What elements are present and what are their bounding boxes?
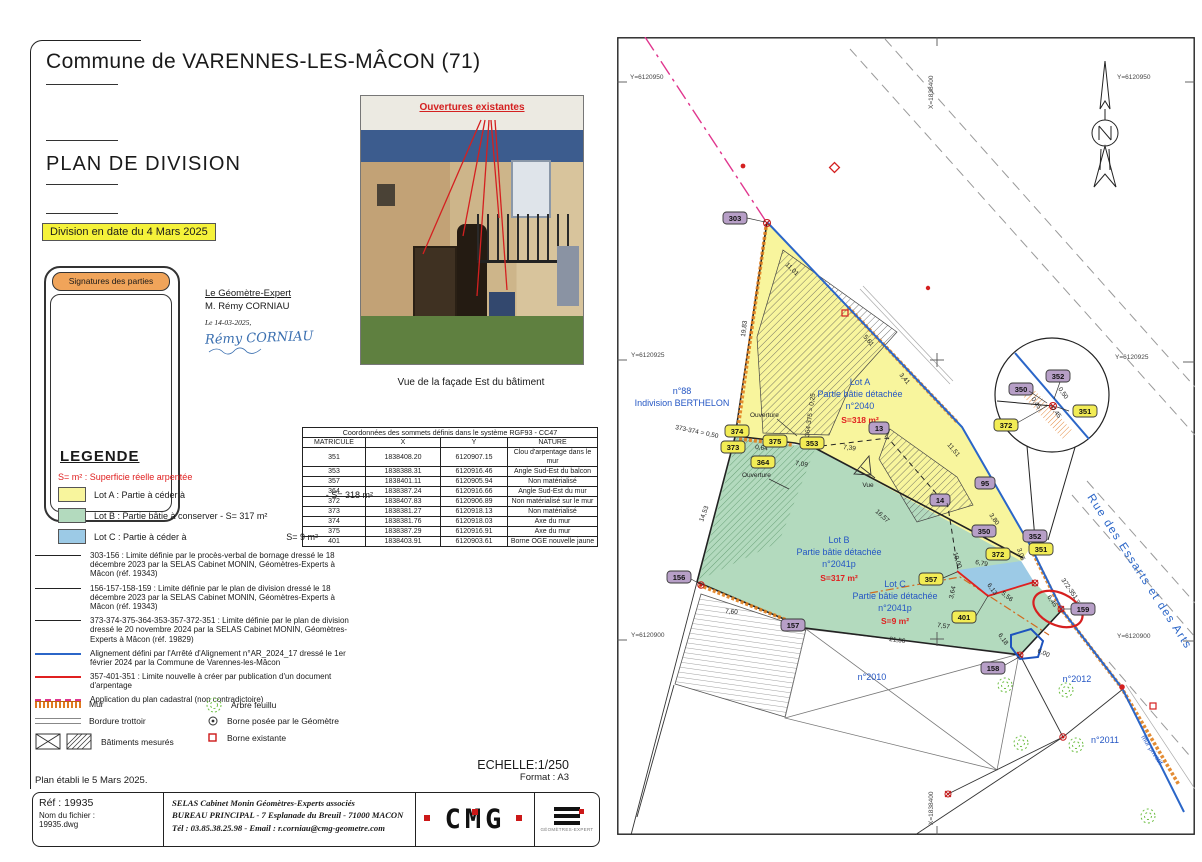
- svg-text:Lot C: Lot C: [884, 579, 906, 589]
- svg-text:n°2012: n°2012: [1063, 674, 1092, 684]
- svg-text:303: 303: [729, 214, 742, 223]
- legend-lot-a: Lot A : Partie à céder à - S= 318 m²: [58, 487, 373, 502]
- svg-text:Y=6120900: Y=6120900: [1117, 633, 1151, 640]
- logo-accent: [472, 809, 478, 815]
- svg-text:373: 373: [727, 443, 740, 452]
- legend-entry: 156-157-158-159 : Limite définie par le …: [35, 584, 353, 612]
- signature-handwriting: Rémy CORNIAU: [205, 326, 366, 349]
- lot-c-swatch: [58, 529, 86, 544]
- svg-text:Lot B: Lot B: [828, 535, 849, 545]
- surveyor-role: Le Géomètre-Expert: [205, 288, 365, 301]
- ge-logo: GÉOMÈTRES-EXPERT: [535, 793, 599, 846]
- svg-text:350: 350: [1015, 385, 1028, 394]
- lot-b-swatch: [58, 508, 86, 523]
- firm-cell: SELAS Cabinet Monin Géomètres-Experts as…: [164, 793, 416, 846]
- coordinates-table-header: MATRICULE X Y NATURE: [303, 438, 598, 448]
- legend-lot-b: Lot B : Partie bâtie à conserver - S= 31…: [58, 508, 373, 523]
- svg-text:n°2010: n°2010: [858, 672, 887, 682]
- svg-text:X=1838400: X=1838400: [928, 75, 935, 109]
- legend-borne-existante: Borne existante: [207, 732, 286, 744]
- svg-text:Y=6120950: Y=6120950: [1117, 74, 1151, 81]
- svg-text:375: 375: [769, 437, 782, 446]
- svg-text:156: 156: [673, 573, 686, 582]
- format-value: Format : A3: [397, 772, 569, 783]
- svg-text:n°2040: n°2040: [846, 401, 875, 411]
- legend-entry: Alignement défini par l'Arrêté d'Alignem…: [35, 649, 353, 667]
- svg-text:158: 158: [987, 664, 1000, 673]
- scale-block: ECHELLE:1/250 Format : A3: [397, 758, 569, 783]
- survey-plan-drawing: Y=6120950 Y=6120950 Y=6120925 Y=6120925 …: [617, 37, 1195, 835]
- svg-text:357: 357: [925, 575, 938, 584]
- blue-line-sample: [35, 653, 81, 655]
- plan-established-date: Plan établi le 5 Mars 2025.: [35, 775, 147, 786]
- svg-text:Ouverture: Ouverture: [742, 472, 771, 479]
- svg-text:364: 364: [757, 458, 770, 467]
- black-line-sample: [35, 620, 81, 621]
- svg-text:n°2041p: n°2041p: [822, 559, 856, 569]
- curb-icon: [35, 718, 81, 724]
- svg-text:353: 353: [806, 439, 819, 448]
- divider: [46, 84, 118, 85]
- legend-bordure: Bordure trottoir: [35, 716, 146, 726]
- legend-entry: 373-374-375-364-353-357-372-351 : Limite…: [35, 616, 353, 644]
- title-block: Réf : 19935 Nom du fichier : 19935.dwg S…: [32, 792, 600, 847]
- red-line-sample: [35, 676, 81, 678]
- surveyor-name: M. Rémy CORNIAU: [205, 301, 365, 314]
- legend-entry: 357-401-351 : Limite nouvelle à créer pa…: [35, 672, 353, 690]
- table-row: 3511838408.206120907.15Clou d'arpentage …: [303, 448, 598, 467]
- existing-monument-icon: [207, 732, 219, 744]
- legend-line-entries: 303-156 : Limite définie par le procès-v…: [35, 551, 353, 710]
- svg-text:X=1838400: X=1838400: [928, 791, 935, 825]
- photo-annotation-arrows: [361, 96, 583, 364]
- svg-text:7,60: 7,60: [725, 608, 739, 616]
- svg-text:157: 157: [787, 621, 800, 630]
- svg-text:S=317 m²: S=317 m²: [820, 573, 858, 583]
- firm-contact: Tél : 03.85.38.25.98 - Email : r.corniau…: [172, 822, 407, 834]
- svg-text:351: 351: [1035, 545, 1048, 554]
- reference-number: Réf : 19935: [39, 797, 157, 809]
- document-title: PLAN DE DIVISION: [46, 153, 241, 176]
- plan-de-division-sheet: Commune de VARENNES-LES-MÂCON (71) PLAN …: [0, 0, 1202, 862]
- measured-buildings-icon: [35, 733, 93, 751]
- svg-text:Partie bâtie détachée: Partie bâtie détachée: [796, 547, 881, 557]
- logo-accent: [516, 815, 522, 821]
- svg-text:352: 352: [1029, 532, 1042, 541]
- ge-logo-mark: [554, 807, 580, 825]
- legend-lot-c: Lot C : Partie à céder à S= 9 m²: [58, 529, 373, 544]
- svg-text:Lot A: Lot A: [850, 377, 871, 387]
- svg-text:n°2041p: n°2041p: [878, 603, 912, 613]
- svg-text:95: 95: [981, 479, 989, 488]
- ge-logo-text: GÉOMÈTRES-EXPERT: [541, 827, 594, 832]
- facade-photo: Ouvertures existantes: [360, 95, 584, 365]
- file-label: Nom du fichier :: [39, 811, 157, 820]
- legend-batiments: Bâtiments mesurés: [35, 733, 174, 751]
- svg-text:Y=6120900: Y=6120900: [631, 632, 665, 639]
- lot-a-area: - S= 318 m²: [326, 490, 373, 500]
- lot-c-label: Lot C : Partie à céder à: [94, 532, 187, 542]
- legend-mur: Mur: [35, 699, 104, 709]
- legend-entry: 303-156 : Limite définie par le procès-v…: [35, 551, 353, 579]
- svg-text:401: 401: [958, 613, 971, 622]
- lot-a-swatch: [58, 487, 86, 502]
- svg-text:S=9 m²: S=9 m²: [881, 616, 909, 626]
- svg-text:Vue: Vue: [862, 482, 874, 489]
- division-date-highlight: Division en date du 4 Mars 2025: [42, 223, 216, 241]
- legend-borne-posee: Borne posée par le Géomètre: [207, 715, 339, 727]
- logo-accent: [424, 815, 430, 821]
- firm-name: SELAS Cabinet Monin Géomètres-Experts as…: [172, 797, 407, 809]
- svg-text:Y=6120925: Y=6120925: [1115, 354, 1149, 361]
- lot-c-area: S= 9 m²: [286, 532, 318, 542]
- commune-title: Commune de VARENNES-LES-MÂCON (71): [46, 50, 481, 74]
- photo-annotation-label: Ouvertures existantes: [361, 102, 583, 113]
- svg-text:Partie bâtie détachée: Partie bâtie détachée: [817, 389, 902, 399]
- photo-caption: Vue de la façade Est du bâtiment: [350, 377, 592, 388]
- scale-value: ECHELLE:1/250: [397, 758, 569, 772]
- reference-cell: Réf : 19935 Nom du fichier : 19935.dwg: [33, 793, 164, 846]
- svg-text:372: 372: [992, 550, 1005, 559]
- svg-text:352: 352: [1052, 372, 1065, 381]
- svg-text:159: 159: [1077, 605, 1090, 614]
- svg-text:374: 374: [731, 427, 744, 436]
- svg-text:Partie bâtie détachée: Partie bâtie détachée: [852, 591, 937, 601]
- svg-text:Indivision BERTHELON: Indivision BERTHELON: [635, 398, 730, 408]
- cmg-logo: CMG: [416, 793, 535, 846]
- signatures-header: Signatures des parties: [52, 272, 170, 291]
- svg-text:13: 13: [875, 424, 883, 433]
- svg-text:350: 350: [978, 527, 991, 536]
- legend-title: LEGENDE: [60, 448, 140, 465]
- coordinates-table-title: Coordonnées des sommets définis dans le …: [303, 428, 598, 438]
- lot-b-label: Lot B : Partie bâtie à conserver - S= 31…: [94, 511, 267, 521]
- svg-text:Ouverture: Ouverture: [750, 412, 779, 419]
- tree-icon: [205, 696, 223, 714]
- set-monument-icon: [207, 715, 219, 727]
- legend-arbre: Arbre feuillu: [205, 696, 276, 714]
- svg-text:351: 351: [1079, 407, 1092, 416]
- surveyor-block: Le Géomètre-Expert M. Rémy CORNIAU Le 14…: [205, 288, 365, 361]
- lot-a-label: Lot A : Partie à céder à: [94, 490, 185, 500]
- svg-text:372: 372: [1000, 421, 1013, 430]
- black-line-sample: [35, 588, 81, 589]
- divider: [46, 213, 118, 214]
- firm-address: BUREAU PRINCIPAL - 7 Esplanade du Breuil…: [172, 809, 407, 821]
- svg-text:Y=6120925: Y=6120925: [631, 352, 665, 359]
- wall-hatch-icon: [35, 701, 81, 708]
- divider: [46, 184, 118, 185]
- table-row: 3531838388.316120916.46Angle Sud-Est du …: [303, 467, 598, 477]
- black-line-sample: [35, 555, 81, 556]
- svg-text:n°88: n°88: [673, 386, 692, 396]
- legend-note: S= m² : Superficie réelle arpentée: [58, 472, 192, 482]
- divider: [46, 140, 118, 141]
- table-row: 3571838401.116120905.94Non matérialisé: [303, 477, 598, 487]
- file-name: 19935.dwg: [39, 820, 157, 829]
- svg-text:Y=6120950: Y=6120950: [630, 74, 664, 81]
- svg-text:n°2011: n°2011: [1091, 735, 1119, 745]
- svg-text:14: 14: [936, 496, 945, 505]
